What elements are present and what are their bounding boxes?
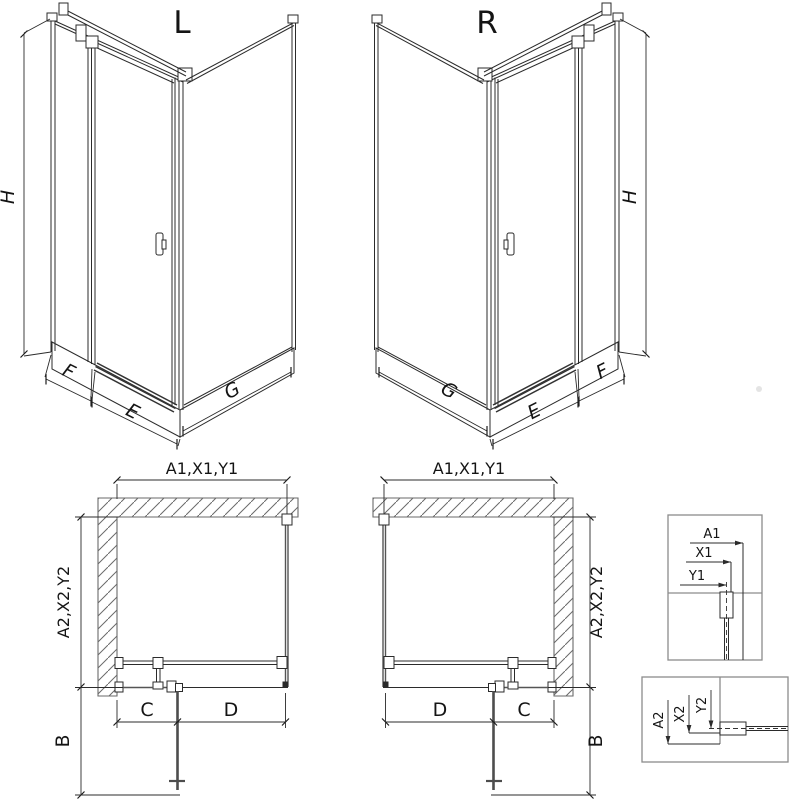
iso-view-right: R H F E G	[325, 0, 670, 450]
detail-label-a1: A1	[703, 527, 720, 542]
dim-label-depth-left-plan: A2,X2,Y2	[54, 566, 73, 638]
dim-label-width-right-plan: A1,X1,Y1	[433, 459, 505, 478]
door-pivot	[167, 681, 176, 692]
detail-label-y1: Y1	[688, 569, 705, 584]
dim-label-depth-right-plan: A2,X2,Y2	[587, 566, 606, 638]
detail-label-y2: Y2	[695, 697, 710, 714]
wall-hatch-left-plan	[98, 498, 298, 696]
corner-post	[179, 80, 183, 411]
dim-label-fixed-right: F	[593, 359, 613, 384]
detail-view-depth-adjustment: A2 X2 Y2	[635, 665, 800, 770]
dim-label-width-left-plan: A1,X1,Y1	[166, 459, 238, 478]
dim-label-swing-right-plan: B	[585, 734, 607, 747]
iso-view-left: L H F E G	[0, 0, 345, 450]
watermark-dot	[756, 386, 762, 392]
detail-view-width-adjustment: A1 X1 Y1	[652, 505, 800, 670]
detail-label-x1: X1	[695, 546, 712, 561]
technical-drawing-sheet: L H F E G	[0, 0, 800, 800]
enclosure-3d-left	[47, 3, 298, 437]
door-handle	[156, 233, 166, 255]
dim-label-c-right-plan: C	[517, 699, 530, 721]
dim-label-side-right: G	[437, 378, 460, 404]
dim-label-fixed-left: F	[59, 359, 79, 384]
dim-label-d-left-plan: D	[224, 699, 239, 721]
hinge-post	[88, 41, 95, 365]
enclosure-plan-left	[115, 514, 292, 790]
plan-view-left: A1,X1,Y1 A2,X2,Y2 B C D	[30, 450, 340, 800]
detail-label-x2: X2	[673, 705, 688, 722]
dim-label-swing-left-plan: B	[52, 734, 74, 747]
door-edge	[172, 78, 175, 407]
dim-label-door-left: E	[122, 399, 143, 424]
view-title-left: L	[173, 5, 191, 41]
detail-label-a2: A2	[652, 711, 667, 728]
dim-label-height-right: H	[619, 190, 641, 204]
stabilizer-bar-plan	[115, 657, 287, 690]
dim-label-c-left-plan: C	[140, 699, 153, 721]
door-open-plan	[169, 691, 185, 790]
dim-label-d-right-plan: D	[433, 699, 448, 721]
wall-hatch-right-plan	[373, 498, 573, 696]
enclosure-3d-right	[372, 3, 650, 450]
side-panel	[184, 15, 298, 405]
dim-label-height-left: H	[0, 190, 19, 204]
view-title-right: R	[476, 5, 498, 41]
plan-view-right: A1,X1,Y1 A2,X2,Y2 B D C	[331, 450, 641, 800]
corner-fitting	[178, 68, 192, 81]
stabilizer-bar	[59, 3, 186, 76]
